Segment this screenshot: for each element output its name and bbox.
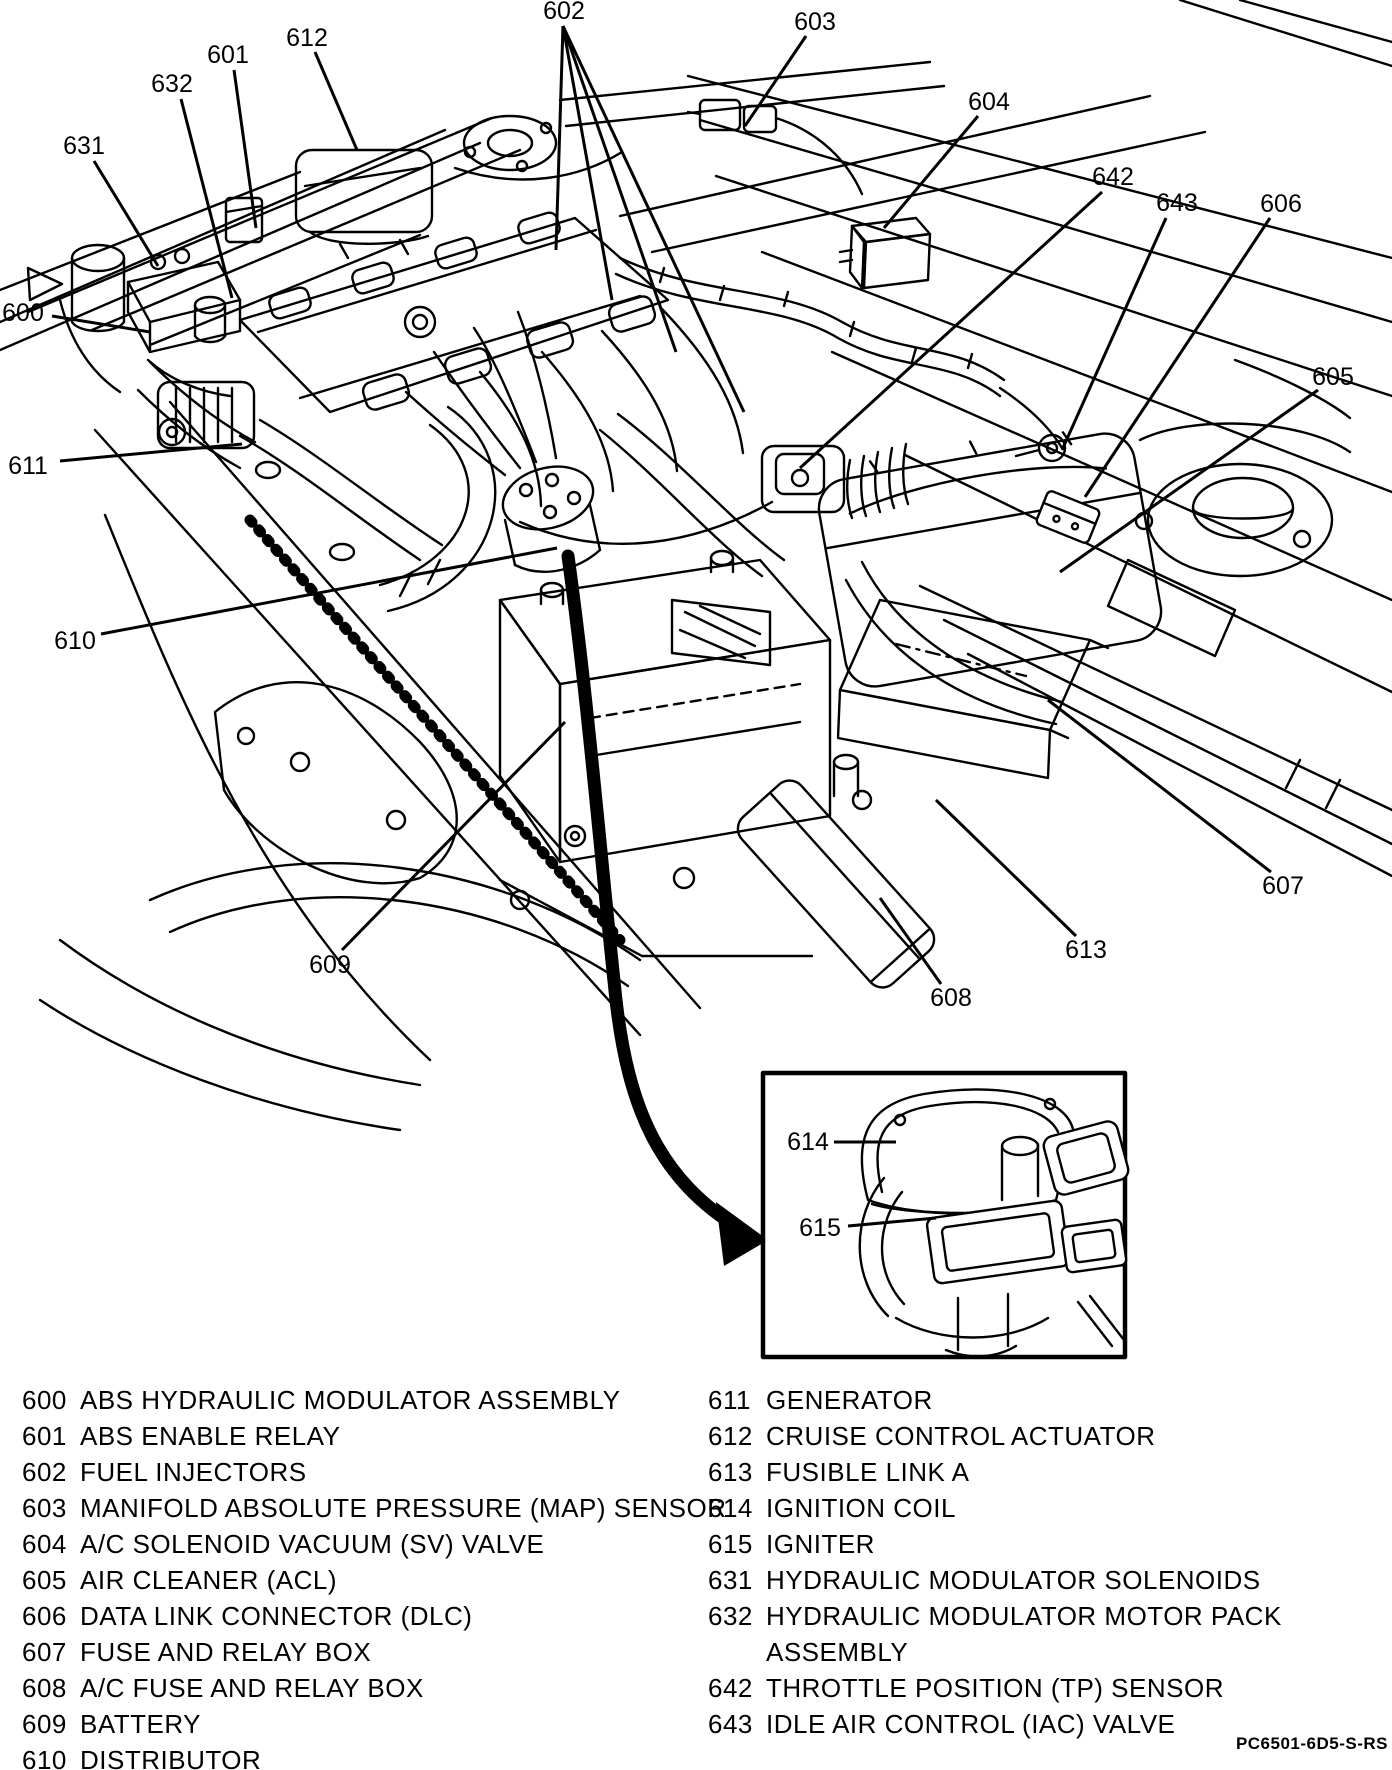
strut-tower-right xyxy=(1136,360,1350,576)
dlc-connector xyxy=(1035,490,1100,544)
legend-item-601: 601ABS ENABLE RELAY xyxy=(22,1418,727,1454)
legend-item-642: 642THROTTLE POSITION (TP) SENSOR xyxy=(708,1670,1282,1706)
legend-item-604: 604A/C SOLENOID VACUUM (SV) VALVE xyxy=(22,1526,727,1562)
plug-wires xyxy=(406,312,556,475)
leader-line-610 xyxy=(101,548,557,634)
leader-line-602 xyxy=(556,26,563,250)
coil-bracket xyxy=(672,600,770,665)
legend-item-label: BATTERY xyxy=(80,1706,201,1742)
legend-item-number: 609 xyxy=(22,1706,80,1742)
callout-642: 642 xyxy=(1092,163,1134,191)
legend-right-column: 611GENERATOR612CRUISE CONTROL ACTUATOR61… xyxy=(708,1382,1282,1742)
legend-left-column: 600ABS HYDRAULIC MODULATOR ASSEMBLY601AB… xyxy=(22,1382,727,1770)
callout-613: 613 xyxy=(1065,936,1107,964)
legend-item-label: IGNITER xyxy=(766,1526,875,1562)
callout-615: 615 xyxy=(799,1214,841,1242)
callout-606: 606 xyxy=(1260,190,1302,218)
leader-line-604 xyxy=(884,116,978,228)
leader-line-612 xyxy=(315,52,357,150)
legend-item-608: 608A/C FUSE AND RELAY BOX xyxy=(22,1670,727,1706)
distributor xyxy=(496,457,600,572)
legend-item-602: 602FUEL INJECTORS xyxy=(22,1454,727,1490)
legend-item-606: 606DATA LINK CONNECTOR (DLC) xyxy=(22,1598,727,1634)
legend-item-613: 613FUSIBLE LINK A xyxy=(708,1454,1282,1490)
callout-601: 601 xyxy=(207,41,249,69)
legend-item-number: 601 xyxy=(22,1418,80,1454)
legend-item-631: 631HYDRAULIC MODULATOR SOLENOIDS xyxy=(708,1562,1282,1598)
legend-item-number: 606 xyxy=(22,1598,80,1634)
battery xyxy=(500,551,830,956)
legend-item-614: 614IGNITION COIL xyxy=(708,1490,1282,1526)
legend-item-label: MANIFOLD ABSOLUTE PRESSURE (MAP) SENSOR xyxy=(80,1490,727,1526)
legend-item-609: 609BATTERY xyxy=(22,1706,727,1742)
legend-item-label: FUEL INJECTORS xyxy=(80,1454,307,1490)
leader-line-643 xyxy=(1062,218,1166,450)
legend-item-label: DATA LINK CONNECTOR (DLC) xyxy=(80,1598,472,1634)
legend-item-600: 600ABS HYDRAULIC MODULATOR ASSEMBLY xyxy=(22,1382,727,1418)
legend-item-number: 602 xyxy=(22,1454,80,1490)
legend-item-label: A/C SOLENOID VACUUM (SV) VALVE xyxy=(80,1526,544,1562)
legend-item-615: 615IGNITER xyxy=(708,1526,1282,1562)
legend-item-label: CRUISE CONTROL ACTUATOR xyxy=(766,1418,1156,1454)
callout-612: 612 xyxy=(286,24,328,52)
legend-item-label: IGNITION COIL xyxy=(766,1490,956,1526)
manual-page: 6006016026036046056066076086096106116126… xyxy=(0,0,1392,1770)
ac-fuse-box xyxy=(731,755,940,994)
legend-item-number: 613 xyxy=(708,1454,766,1490)
legend-item-number: 612 xyxy=(708,1418,766,1454)
callout-632: 632 xyxy=(151,70,193,98)
legend-item-number: 614 xyxy=(708,1490,766,1526)
legend-item-label: DISTRIBUTOR xyxy=(80,1742,261,1770)
legend-item-number: 605 xyxy=(22,1562,80,1598)
callout-609: 609 xyxy=(309,951,351,979)
legend-item-610: 610DISTRIBUTOR xyxy=(22,1742,727,1770)
callout-643: 643 xyxy=(1156,189,1198,217)
leader-line-601 xyxy=(234,70,256,228)
leader-line-642 xyxy=(800,192,1102,468)
legend-item-607: 607FUSE AND RELAY BOX xyxy=(22,1634,727,1670)
callout-600: 600 xyxy=(2,299,44,327)
legend-item-label: A/C FUSE AND RELAY BOX xyxy=(80,1670,424,1706)
legend-item-number: 608 xyxy=(22,1670,80,1706)
legend-item-label: THROTTLE POSITION (TP) SENSOR xyxy=(766,1670,1224,1706)
callout-611: 611 xyxy=(8,452,48,480)
callout-603: 603 xyxy=(794,8,836,36)
leader-line-607 xyxy=(1048,700,1271,872)
callout-layer: 6006016026036046056066076086096106116126… xyxy=(2,0,1354,1242)
callout-602: 602 xyxy=(543,0,585,25)
leader-line-605 xyxy=(1060,390,1318,572)
legend-item-611: 611GENERATOR xyxy=(708,1382,1282,1418)
intake-manifold xyxy=(480,309,772,544)
wiring-harness xyxy=(616,258,1062,448)
abs-relay xyxy=(226,198,262,242)
callout-604: 604 xyxy=(968,88,1010,116)
legend-item-number: 611 xyxy=(708,1382,766,1418)
legend-item-label: HYDRAULIC MODULATOR MOTOR PACK ASSEMBLY xyxy=(766,1598,1282,1670)
figure-code: PC6501-6D5-S-RS xyxy=(1236,1734,1388,1754)
legend-item-number: 632 xyxy=(708,1598,766,1670)
legend-item-label: ABS HYDRAULIC MODULATOR ASSEMBLY xyxy=(80,1382,620,1418)
engine-compartment-diagram: 6006016026036046056066076086096106116126… xyxy=(0,0,1392,1372)
legend-item-605: 605AIR CLEANER (ACL) xyxy=(22,1562,727,1598)
legend-item-603: 603MANIFOLD ABSOLUTE PRESSURE (MAP) SENS… xyxy=(22,1490,727,1526)
leader-line-602 xyxy=(563,26,612,300)
leader-line-608 xyxy=(880,898,941,984)
legend-item-number: 615 xyxy=(708,1526,766,1562)
legend-item-number: 600 xyxy=(22,1382,80,1418)
legend-item-number: 610 xyxy=(22,1742,80,1770)
legend-item-label: ABS ENABLE RELAY xyxy=(80,1418,340,1454)
legend-item-label: FUSIBLE LINK A xyxy=(766,1454,970,1490)
callout-631: 631 xyxy=(63,132,105,160)
legend-item-number: 603 xyxy=(22,1490,80,1526)
legend-item-label: GENERATOR xyxy=(766,1382,933,1418)
leader-line-613 xyxy=(936,800,1076,936)
callout-608: 608 xyxy=(930,984,972,1012)
legend-item-number: 643 xyxy=(708,1706,766,1742)
suspension xyxy=(40,515,871,1130)
legend-item-label: HYDRAULIC MODULATOR SOLENOIDS xyxy=(766,1562,1261,1598)
legend-item-label: IDLE AIR CONTROL (IAC) VALVE xyxy=(766,1706,1175,1742)
legend-item-number: 631 xyxy=(708,1562,766,1598)
legend-item-number: 604 xyxy=(22,1526,80,1562)
legend-item-label: FUSE AND RELAY BOX xyxy=(80,1634,371,1670)
throttle-body xyxy=(762,446,844,512)
callout-610: 610 xyxy=(54,627,96,655)
legend-item-632: 632HYDRAULIC MODULATOR MOTOR PACK ASSEMB… xyxy=(708,1598,1282,1670)
callout-605: 605 xyxy=(1312,363,1354,391)
legend-item-number: 607 xyxy=(22,1634,80,1670)
intake-duct xyxy=(847,444,908,518)
legend-item-643: 643IDLE AIR CONTROL (IAC) VALVE xyxy=(708,1706,1282,1742)
legend-item-label: AIR CLEANER (ACL) xyxy=(80,1562,337,1598)
legend-item-612: 612CRUISE CONTROL ACTUATOR xyxy=(708,1418,1282,1454)
callout-607: 607 xyxy=(1262,872,1304,900)
legend-item-number: 642 xyxy=(708,1670,766,1706)
callout-614: 614 xyxy=(787,1128,829,1156)
